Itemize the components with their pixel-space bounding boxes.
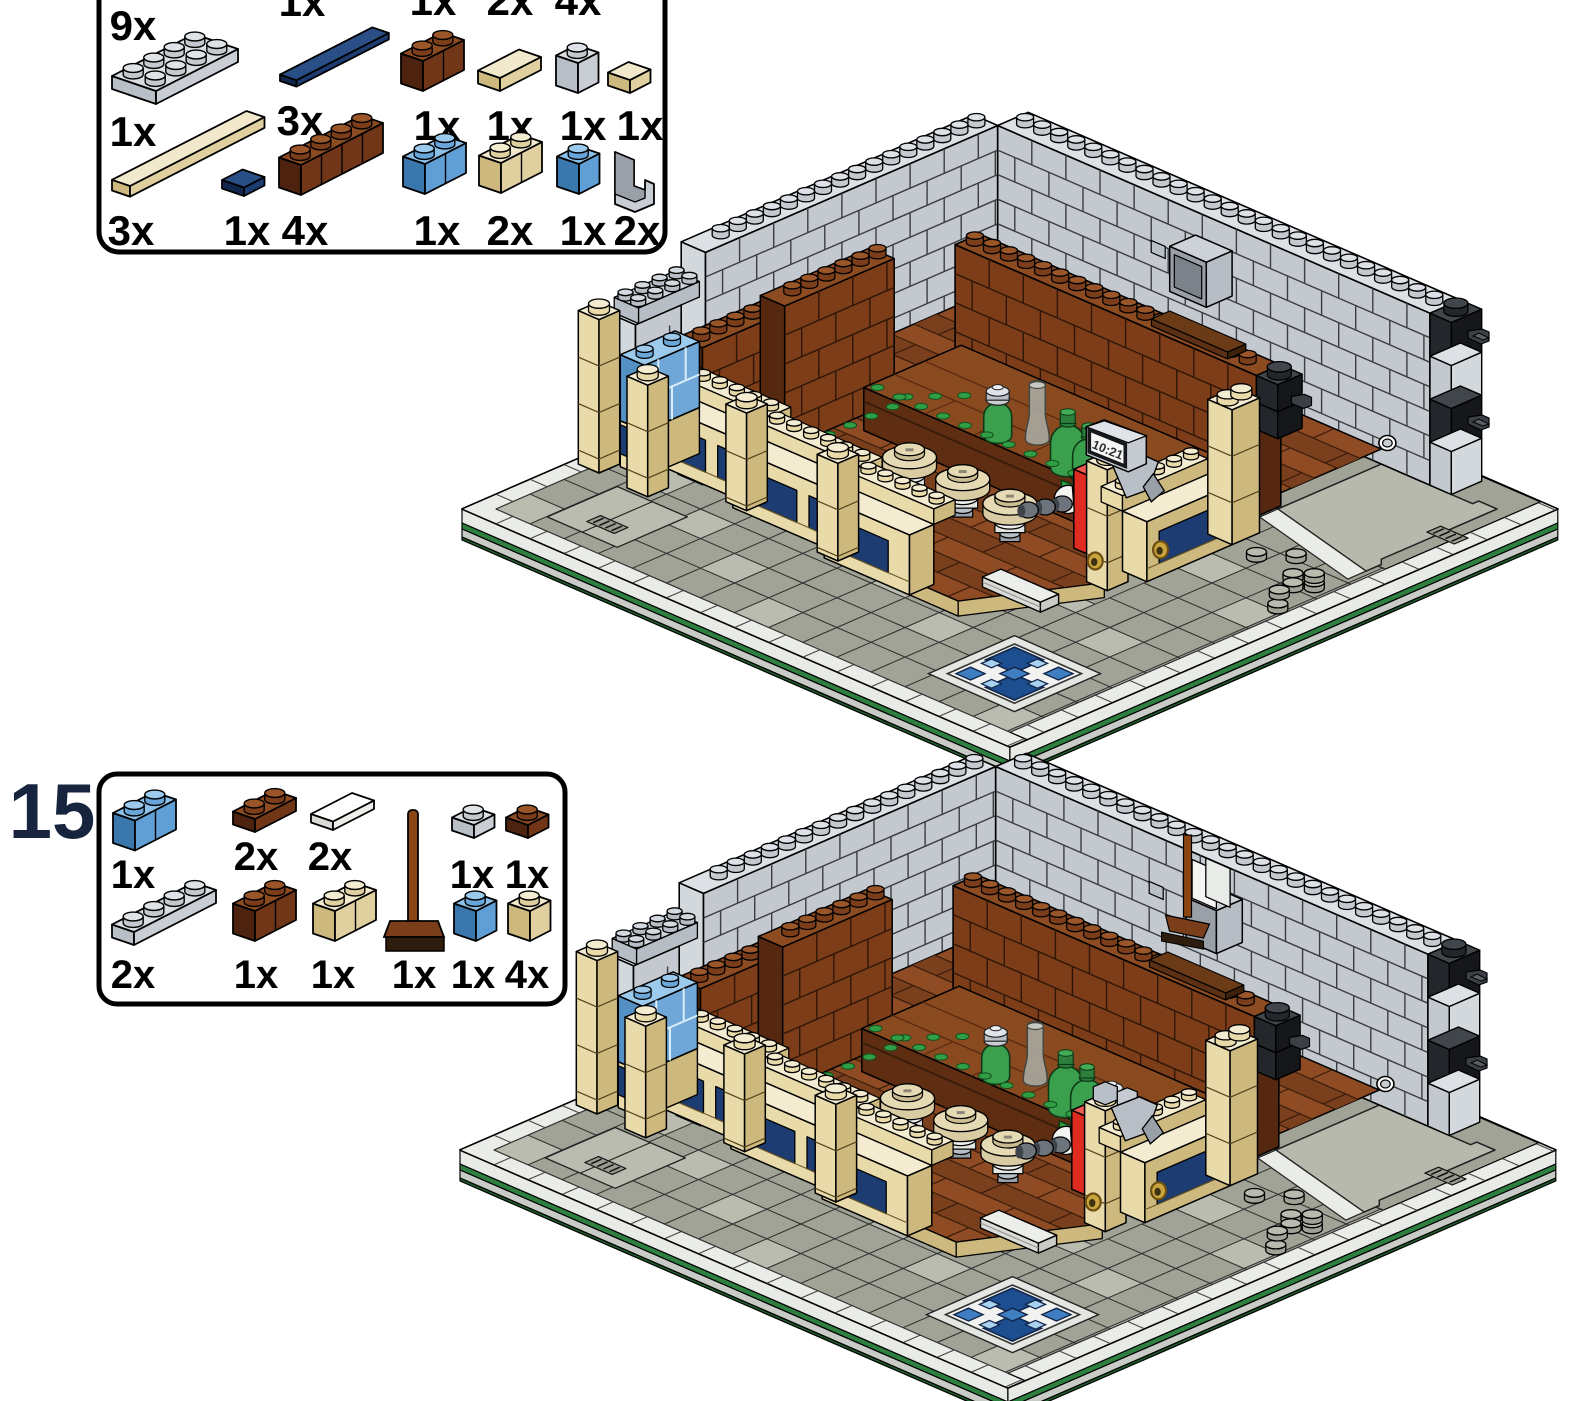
svg-text:1x: 1x	[560, 207, 607, 254]
svg-text:1x: 1x	[234, 953, 279, 997]
svg-text:4x: 4x	[555, 0, 602, 24]
svg-text:2x: 2x	[111, 953, 156, 997]
svg-text:4x: 4x	[505, 953, 550, 997]
svg-text:1x: 1x	[111, 853, 156, 897]
svg-text:1x: 1x	[450, 853, 495, 897]
svg-text:1x: 1x	[505, 853, 550, 897]
svg-text:2x: 2x	[614, 207, 661, 254]
svg-text:9x: 9x	[110, 2, 157, 49]
svg-text:1x: 1x	[414, 207, 461, 254]
svg-text:1x: 1x	[224, 207, 271, 254]
svg-text:2x: 2x	[487, 0, 534, 24]
svg-text:1x: 1x	[392, 953, 437, 997]
svg-text:1x: 1x	[560, 102, 607, 149]
svg-text:1x: 1x	[451, 953, 496, 997]
svg-text:3x: 3x	[108, 207, 155, 254]
svg-text:4x: 4x	[282, 207, 329, 254]
svg-text:2x: 2x	[234, 835, 279, 879]
svg-text:1x: 1x	[617, 102, 664, 149]
svg-text:1x: 1x	[410, 0, 457, 24]
svg-text:2x: 2x	[487, 207, 534, 254]
svg-text:1x: 1x	[110, 108, 157, 155]
svg-text:1x: 1x	[311, 953, 356, 997]
svg-text:2x: 2x	[308, 835, 353, 879]
svg-text:1x: 1x	[279, 0, 326, 25]
svg-text:15: 15	[9, 767, 96, 855]
